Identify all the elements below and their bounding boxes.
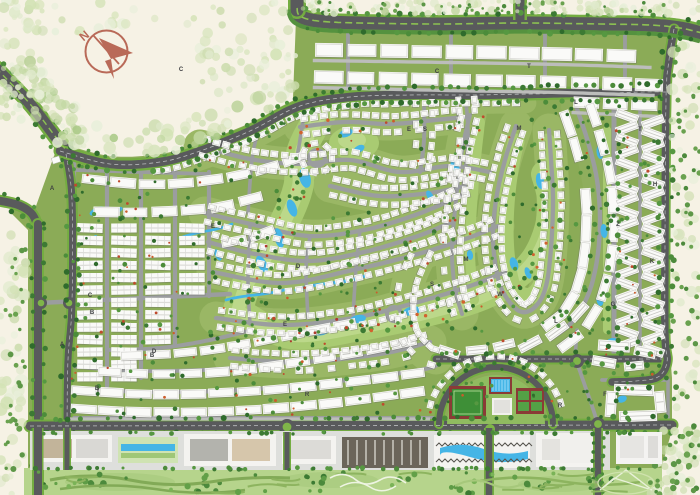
svg-text:A: A — [50, 186, 55, 192]
svg-text:A: A — [60, 342, 65, 348]
svg-text:Z: Z — [616, 222, 620, 228]
svg-text:K: K — [650, 259, 655, 265]
svg-text:C: C — [88, 293, 93, 299]
svg-text:R: R — [305, 392, 310, 398]
svg-text:B: B — [90, 310, 95, 316]
svg-text:L: L — [554, 319, 558, 325]
svg-text:S: S — [430, 282, 434, 288]
svg-text:T: T — [527, 64, 531, 70]
svg-text:E: E — [211, 224, 215, 230]
svg-text:B: B — [95, 386, 100, 392]
svg-text:S: S — [423, 127, 427, 133]
svg-text:C: C — [179, 67, 184, 73]
svg-text:M: M — [517, 126, 522, 132]
svg-text:M: M — [464, 257, 469, 263]
svg-text:F: F — [603, 392, 607, 398]
svg-text:R: R — [558, 403, 563, 409]
svg-text:T: T — [638, 127, 642, 133]
svg-text:H: H — [653, 182, 657, 188]
svg-text:E: E — [283, 322, 287, 328]
svg-text:C: C — [435, 69, 440, 75]
svg-text:D: D — [296, 264, 301, 270]
svg-text:D: D — [152, 349, 157, 355]
svg-text:L: L — [574, 100, 578, 106]
svg-text:G: G — [611, 302, 616, 308]
svg-text:E: E — [407, 127, 411, 133]
svg-text:W: W — [497, 292, 503, 298]
